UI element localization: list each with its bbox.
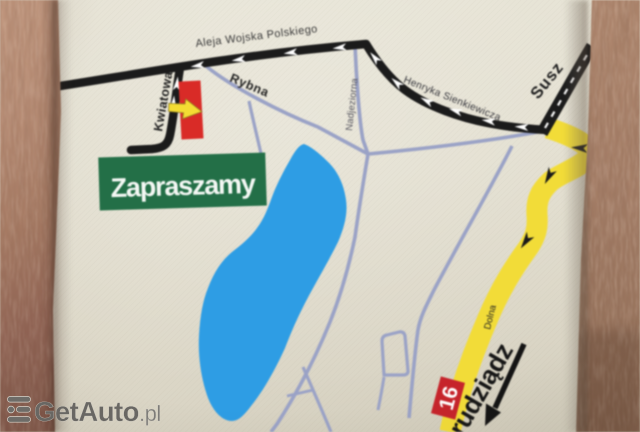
svg-text:GetAuto.pl: GetAuto.pl bbox=[34, 396, 161, 427]
